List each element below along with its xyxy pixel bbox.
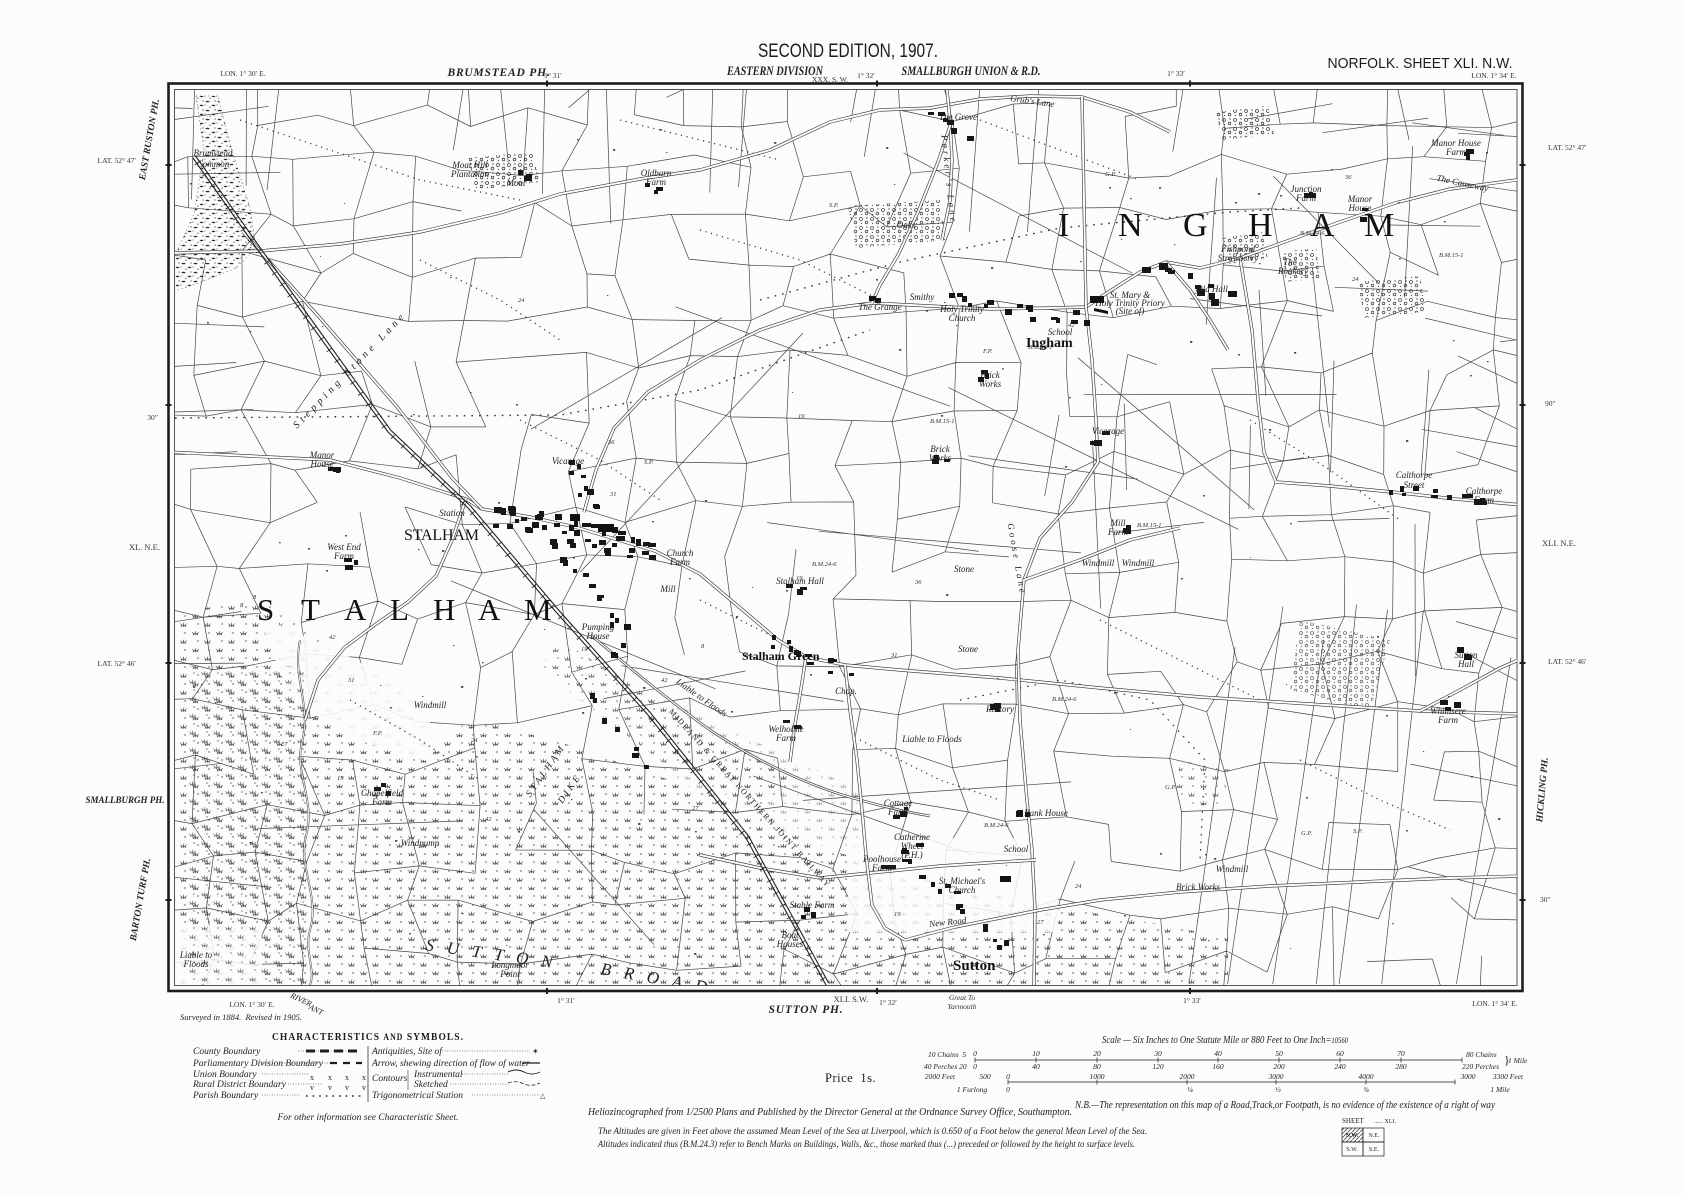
svg-text:19: 19: [798, 413, 805, 420]
svg-text:19: 19: [894, 911, 901, 918]
svg-text:Parliamentary Division Boundar: Parliamentary Division Boundary: [192, 1059, 324, 1069]
svg-text:60: 60: [1336, 1049, 1344, 1058]
svg-text:2000: 2000: [1180, 1072, 1195, 1081]
svg-text:Vicarage: Vicarage: [552, 456, 584, 466]
svg-text:40 Perches 20: 40 Perches 20: [924, 1062, 967, 1071]
svg-text:Farm: Farm: [1107, 527, 1129, 537]
svg-text:v: v: [310, 1083, 314, 1092]
svg-text:B.M.15-1: B.M.15-1: [1439, 252, 1464, 259]
svg-text:36: 36: [1344, 174, 1352, 181]
svg-text:Chap.: Chap.: [835, 686, 857, 696]
svg-text:1 Mile: 1 Mile: [1508, 1056, 1528, 1065]
svg-text:S.P.: S.P.: [1353, 828, 1363, 835]
svg-text:Farm: Farm: [775, 733, 797, 743]
svg-text:Windmill: Windmill: [1216, 864, 1249, 874]
svg-text:School: School: [1048, 327, 1073, 337]
svg-text:Brumstead: Brumstead: [194, 148, 233, 158]
svg-text:Rectory: Rectory: [985, 704, 1014, 714]
svg-text:XLI. S.W.: XLI. S.W.: [834, 994, 869, 1004]
svg-text:x: x: [362, 1073, 366, 1082]
svg-text:F.P.: F.P.: [982, 348, 993, 355]
svg-text:24: 24: [518, 297, 525, 304]
svg-text:Hall: Hall: [1457, 659, 1475, 669]
svg-text:2000 Feet: 2000 Feet: [925, 1072, 956, 1081]
svg-text:Stalham Green: Stalham Green: [742, 649, 820, 663]
svg-text:Farm: Farm: [1437, 715, 1459, 725]
svg-text:Union Boundary: Union Boundary: [193, 1070, 257, 1080]
svg-text:Farm: Farm: [871, 863, 893, 873]
svg-text:S.P.: S.P.: [829, 202, 839, 209]
svg-text:N.E.: N.E.: [1369, 1133, 1380, 1139]
svg-text:NORFOLK. SHEET XLI. N.W.: NORFOLK. SHEET XLI. N.W.: [1328, 56, 1513, 72]
svg-text:Farm: Farm: [1473, 495, 1495, 505]
svg-text:B.M.15-1: B.M.15-1: [930, 418, 955, 425]
svg-text:30′′: 30′′: [1540, 895, 1551, 904]
svg-text:24: 24: [1352, 276, 1359, 283]
svg-text:1° 33′: 1° 33′: [1183, 996, 1201, 1005]
svg-text:The Altitudes are given in Fee: The Altitudes are given in Feet above th…: [598, 1126, 1147, 1136]
svg-text:90′′: 90′′: [1545, 399, 1556, 408]
svg-text:Stable Farm: Stable Farm: [790, 900, 835, 910]
svg-text:3300 Feet: 3300 Feet: [1492, 1072, 1524, 1081]
svg-text:CHARACTERISTICS AND SYMBOLS.: CHARACTERISTICS AND SYMBOLS.: [272, 1031, 464, 1043]
svg-text:LON. 1° 34′ E.: LON. 1° 34′ E.: [1472, 999, 1517, 1008]
svg-text:70: 70: [1397, 1049, 1405, 1058]
svg-text:Price 1s.: Price 1s.: [825, 1071, 876, 1085]
svg-text:Sketched: Sketched: [414, 1080, 448, 1090]
svg-text:Church: Church: [949, 313, 976, 323]
svg-text:Plantation: Plantation: [450, 169, 489, 179]
svg-text:3000: 3000: [1460, 1072, 1476, 1081]
svg-text:27: 27: [692, 805, 699, 812]
svg-text:Works: Works: [979, 379, 1002, 389]
svg-text:Sutton: Sutton: [953, 958, 996, 974]
svg-text:LAT. 52° 46′: LAT. 52° 46′: [98, 659, 137, 668]
svg-text:Calthorpe: Calthorpe: [1396, 470, 1433, 480]
svg-text:Farm: Farm: [645, 177, 667, 187]
svg-text:Instrumental: Instrumental: [413, 1070, 463, 1080]
svg-text:SMALLBURGH PH.: SMALLBURGH PH.: [85, 795, 164, 805]
svg-text:B.M.15-1: B.M.15-1: [1137, 522, 1162, 529]
svg-text:Scale — Six Inches to One Stat: Scale — Six Inches to One Statute Mile o…: [1102, 1035, 1348, 1046]
svg-text:36: 36: [914, 579, 922, 586]
svg-text:Point: Point: [499, 969, 520, 979]
svg-text:B.M.24-6: B.M.24-6: [812, 561, 837, 568]
svg-text:B.M.24-6: B.M.24-6: [984, 822, 1009, 829]
svg-text:F.P.: F.P.: [372, 730, 383, 737]
svg-text:160: 160: [1212, 1062, 1224, 1071]
svg-text:80 Chains: 80 Chains: [1466, 1050, 1497, 1059]
svg-text:27: 27: [281, 741, 288, 748]
svg-text:Farm: Farm: [333, 551, 355, 561]
svg-text:G.P.: G.P.: [1105, 171, 1116, 178]
svg-text:Farm: Farm: [669, 557, 691, 567]
svg-text:Stalham Hall: Stalham Hall: [776, 576, 824, 586]
svg-text:1000: 1000: [1090, 1072, 1105, 1081]
svg-text:Ingham: Ingham: [1026, 336, 1073, 351]
svg-text:N.B.—The representation on thi: N.B.—The representation on this map of a…: [1074, 1100, 1495, 1111]
svg-text:Farm: Farm: [1295, 193, 1317, 203]
svg-text:Contours: Contours: [372, 1074, 408, 1084]
svg-text:For other information see Char: For other information see Characteristic…: [276, 1112, 458, 1123]
svg-text:BRUMSTEAD PH.: BRUMSTEAD PH.: [446, 67, 550, 79]
svg-text:42: 42: [661, 677, 668, 684]
svg-text:Farm: Farm: [1445, 147, 1467, 157]
svg-text:42: 42: [485, 816, 492, 823]
svg-text:Farm: Farm: [887, 807, 909, 817]
svg-text:Moat: Moat: [506, 178, 526, 188]
svg-text:Liable to Floods: Liable to Floods: [901, 734, 962, 744]
svg-text:Bank House: Bank House: [1024, 808, 1068, 818]
svg-text:1° 31′: 1° 31′: [557, 996, 575, 1005]
svg-text:36: 36: [607, 439, 615, 446]
svg-text:Brick Works: Brick Works: [1176, 882, 1220, 892]
svg-text:24: 24: [1075, 883, 1082, 890]
svg-text:Windmill: Windmill: [1082, 558, 1115, 568]
svg-text:Great To: Great To: [949, 993, 976, 1002]
svg-text:Parish Boundary: Parish Boundary: [192, 1091, 259, 1101]
svg-text:50: 50: [1275, 1049, 1283, 1058]
svg-text:LAT. 52° 46′: LAT. 52° 46′: [1548, 657, 1587, 666]
svg-text:31: 31: [609, 491, 617, 498]
svg-text:Windmill: Windmill: [1122, 558, 1155, 568]
svg-text:10: 10: [1032, 1049, 1040, 1058]
svg-text:House: House: [586, 631, 610, 641]
svg-text:Common: Common: [197, 159, 230, 169]
svg-text:Arrow, shewing direction of fl: Arrow, shewing direction of flow of wate…: [371, 1058, 530, 1069]
svg-text:B.M.24-6: B.M.24-6: [1052, 696, 1077, 703]
svg-text:Church: Church: [949, 885, 976, 895]
svg-text:(P.H.): (P.H.): [901, 850, 922, 860]
svg-text:SUTTON PH.: SUTTON PH.: [769, 1004, 844, 1016]
svg-text:0: 0: [1006, 1072, 1010, 1081]
svg-text:Mill: Mill: [660, 584, 676, 594]
svg-text:500: 500: [979, 1072, 991, 1081]
svg-text:Strawberry: Strawberry: [1218, 253, 1259, 263]
svg-text:220 Perches: 220 Perches: [1462, 1062, 1499, 1071]
svg-text:Altitudes indicated thus (B.M.: Altitudes indicated thus (B.M.24.3) refe…: [597, 1139, 1135, 1149]
svg-text:Works: Works: [929, 453, 952, 463]
svg-text:v: v: [362, 1083, 366, 1092]
svg-text:0: 0: [973, 1049, 977, 1058]
svg-text:Vicarage: Vicarage: [1092, 426, 1124, 436]
svg-text:3000: 3000: [1268, 1072, 1284, 1081]
svg-text:x: x: [310, 1073, 314, 1082]
svg-text:Heliozincographed from 1/2500: Heliozincographed from 1/2500 Plans and …: [587, 1107, 1072, 1118]
svg-text:House: House: [1348, 203, 1372, 213]
svg-text:19: 19: [581, 646, 588, 653]
svg-text:SECOND EDITION, 1907.: SECOND EDITION, 1907.: [758, 40, 938, 62]
svg-text:S.W.: S.W.: [1346, 1147, 1358, 1153]
svg-text:1° 32′: 1° 32′: [857, 71, 875, 80]
svg-text:House: House: [310, 459, 334, 469]
svg-text:Stone: Stone: [954, 564, 974, 574]
svg-text:Surveyed in 1884. Revised in: Surveyed in 1884. Revised in 1905.: [180, 1012, 302, 1022]
svg-text:1 Mile: 1 Mile: [1490, 1085, 1510, 1094]
svg-text:20: 20: [1093, 1049, 1101, 1058]
svg-text:120: 120: [1152, 1062, 1164, 1071]
svg-text:30: 30: [1153, 1049, 1162, 1058]
svg-text:½: ½: [1275, 1085, 1281, 1094]
svg-text:1° 32′: 1° 32′: [879, 998, 897, 1007]
svg-text:LON. 1° 34′ E.: LON. 1° 34′ E.: [1471, 71, 1516, 80]
svg-text:County Boundary: County Boundary: [193, 1047, 261, 1057]
svg-text:4000: 4000: [1359, 1072, 1374, 1081]
svg-text:31: 31: [890, 652, 898, 659]
svg-text:LAT. 52° 47′: LAT. 52° 47′: [98, 156, 137, 165]
svg-text:x: x: [345, 1073, 349, 1082]
svg-text:30′′: 30′′: [147, 413, 158, 422]
svg-text:Windpump: Windpump: [401, 838, 440, 848]
svg-text:Stone: Stone: [958, 644, 978, 654]
svg-text:v: v: [328, 1083, 332, 1092]
svg-text:Station: Station: [439, 508, 465, 518]
svg-text:STALHAM: STALHAM: [404, 527, 484, 544]
svg-text:Trigonometrical Station: Trigonometrical Station: [372, 1091, 463, 1101]
svg-text:Farm: Farm: [371, 797, 393, 807]
svg-text:EASTERN DIVISION: EASTERN DIVISION: [726, 64, 824, 78]
svg-text:42: 42: [329, 634, 336, 641]
svg-text:19: 19: [337, 775, 344, 782]
svg-text:XL. N.E.: XL. N.E.: [129, 542, 160, 552]
svg-text:27: 27: [1037, 919, 1044, 926]
svg-text:1° 31′: 1° 31′: [544, 71, 562, 80]
svg-text:LON. 1° 30′ E.: LON. 1° 30′ E.: [220, 69, 265, 78]
svg-text:240: 240: [1334, 1062, 1346, 1071]
svg-text:LON. 1° 30′ E.: LON. 1° 30′ E.: [229, 1000, 274, 1009]
svg-text:Rural District Boundary: Rural District Boundary: [192, 1080, 287, 1090]
svg-text:G.P.: G.P.: [1165, 784, 1176, 791]
svg-text:v: v: [345, 1083, 349, 1092]
svg-text:Rookery: Rookery: [1277, 266, 1308, 276]
svg-text:G.P.: G.P.: [1301, 830, 1312, 837]
svg-text:24: 24: [471, 737, 478, 744]
svg-text:(Site of): (Site of): [1116, 306, 1145, 316]
svg-text:200: 200: [1273, 1062, 1285, 1071]
svg-text:S.E.: S.E.: [1369, 1147, 1380, 1153]
svg-text:Street: Street: [1404, 480, 1425, 490]
svg-text:Antiquities, Site of: Antiquities, Site of: [371, 1046, 443, 1057]
svg-text:Old Hall: Old Hall: [1196, 284, 1228, 294]
svg-text:¼: ¼: [1187, 1085, 1193, 1094]
svg-text:The Grove: The Grove: [939, 112, 977, 122]
svg-text:Floods: Floods: [182, 959, 208, 969]
svg-text:¾: ¾: [1363, 1085, 1369, 1094]
svg-text:Yarmouth: Yarmouth: [948, 1002, 977, 1011]
svg-text:School: School: [1004, 844, 1029, 854]
svg-text:Smithy: Smithy: [910, 292, 935, 302]
svg-text:31: 31: [347, 677, 355, 684]
svg-text:XLI. N.E.: XLI. N.E.: [1542, 538, 1576, 548]
svg-text:LAT. 52° 47′: LAT. 52° 47′: [1548, 143, 1587, 152]
svg-text:Houses: Houses: [776, 939, 804, 949]
svg-text:0: 0: [1006, 1085, 1010, 1094]
svg-text:Windmill: Windmill: [414, 700, 447, 710]
svg-text:SHEET: SHEET: [1342, 1117, 1365, 1125]
svg-text:SMALLBURGH UNION & R.D.: SMALLBURGH UNION & R.D.: [902, 64, 1041, 78]
svg-text:1 Furlong: 1 Furlong: [957, 1085, 987, 1094]
svg-text:N.W.: N.W.: [1346, 1133, 1359, 1139]
svg-text:1° 33′: 1° 33′: [1167, 69, 1185, 78]
svg-text:10 Chains 5: 10 Chains 5: [928, 1050, 966, 1059]
svg-text:0: 0: [973, 1062, 977, 1071]
svg-text:...... XLI.: ...... XLI.: [1374, 1119, 1396, 1125]
svg-text:x: x: [328, 1073, 332, 1082]
svg-text:280: 280: [1395, 1062, 1407, 1071]
svg-text:40: 40: [1032, 1062, 1040, 1071]
svg-text:40: 40: [1214, 1049, 1222, 1058]
svg-text:Oaks: Oaks: [897, 220, 916, 230]
svg-text:△: △: [540, 1092, 546, 1100]
svg-text:}: }: [1504, 1053, 1510, 1067]
svg-text:The Grange: The Grange: [858, 302, 901, 312]
svg-text:✶: ✶: [532, 1047, 539, 1056]
svg-text:S.P.: S.P.: [644, 459, 654, 466]
svg-text:80: 80: [1093, 1062, 1101, 1071]
